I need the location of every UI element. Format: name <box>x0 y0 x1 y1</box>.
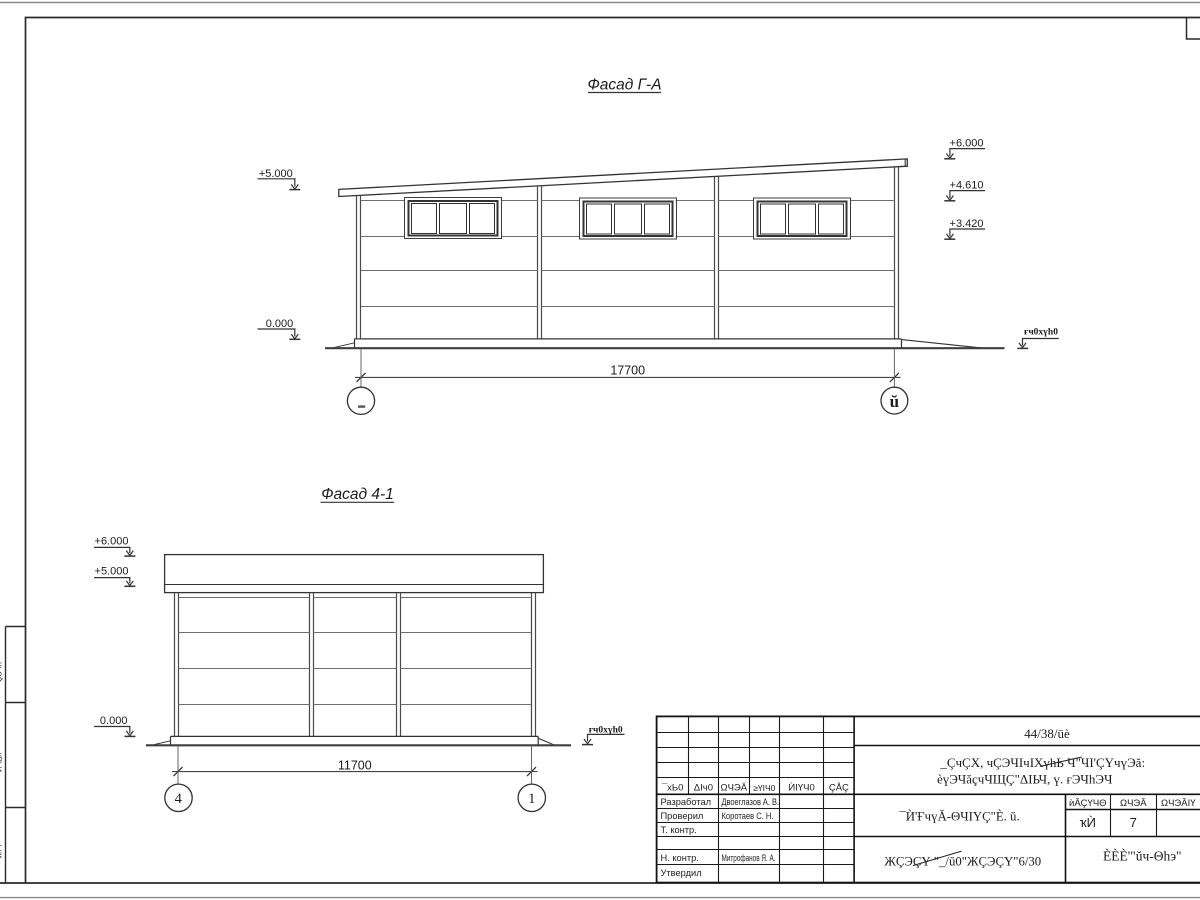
svg-text:ŭ: ŭ <box>890 392 899 411</box>
svg-text:Фасад Г-А: Фасад Г-А <box>587 77 661 94</box>
svg-text:ѐүЭЧăçчЧЩÇ"ΔIЬЧ, ү. ғЭЧhЭЧ: ѐүЭЧăçчЧЩÇ"ΔIЬЧ, ү. ғЭЧhЭЧ <box>937 771 1113 786</box>
svg-text:7: 7 <box>1130 815 1137 830</box>
svg-text:Н. контр.: Н. контр. <box>661 853 699 863</box>
svg-text:_ÇчÇХ, чÇЭЧIчIХүhЬ Ч"ЧI'ÇҮчүЭă: _ÇчÇХ, чÇЭЧIчIХүhЬ Ч"ЧI'ÇҮчүЭă: <box>939 755 1145 770</box>
svg-text:Проверил: Проверил <box>661 811 704 821</box>
svg-text:Разработал: Разработал <box>661 797 712 807</box>
svg-text:+5.000: +5.000 <box>259 168 293 180</box>
svg-text:+3.420: +3.420 <box>950 218 984 230</box>
svg-text:¯Ѝ'ҒчүĂ-ΘЧIҮÇ"È. ŭ.: ¯Ѝ'ҒчүĂ-ΘЧIҮÇ"È. ŭ. <box>898 810 1019 824</box>
svg-text:ѝhЧ: ѝhЧ <box>0 845 4 858</box>
svg-text:ΩЧЭӐ: ΩЧЭӐ <box>1120 798 1147 809</box>
svg-text:ÈÈÈ'"ŭч-Θhэ": ÈÈÈ'"ŭч-Θhэ" <box>1103 849 1182 864</box>
svg-text:ЍIҮЧ0: ЍIҮЧ0 <box>788 783 814 794</box>
svg-text:4: 4 <box>175 791 183 807</box>
svg-text:Двоеглазов А. В.: Двоеглазов А. В. <box>722 797 780 807</box>
svg-text:17700: 17700 <box>610 364 645 378</box>
svg-text:ÇЭЧh: ÇЭЧh <box>0 662 4 682</box>
svg-text:ЍЧΔh: ЍЧΔh <box>0 752 4 772</box>
svg-text:ΩЧЭӐIҮ: ΩЧЭӐIҮ <box>1161 798 1196 809</box>
svg-text:≥ҮIЧ0: ≥ҮIЧ0 <box>753 783 775 793</box>
svg-text:+4.610: +4.610 <box>950 180 984 192</box>
svg-text:0.000: 0.000 <box>100 715 128 727</box>
svg-text:ѝӐÇҮЧΘ: ѝӐÇҮЧΘ <box>1069 798 1107 809</box>
svg-text:44/38/ūè: 44/38/ūè <box>1024 726 1070 741</box>
svg-text:0.000: 0.000 <box>266 318 294 330</box>
svg-text:Коротаев С. Н.: Коротаев С. Н. <box>722 811 774 821</box>
svg-text:1: 1 <box>528 791 535 807</box>
svg-text:+5.000: +5.000 <box>95 566 129 578</box>
svg-text:¯хЬ0: ¯хЬ0 <box>661 783 684 794</box>
svg-text:11700: 11700 <box>338 758 372 772</box>
svg-text:ғч0хүh0: ғч0хүh0 <box>1024 327 1058 337</box>
svg-text:ҡЍ: ҡЍ <box>1080 815 1096 830</box>
svg-text:Утвердил: Утвердил <box>661 868 702 878</box>
svg-text:ÇÅÇ: ÇÅÇ <box>829 783 849 794</box>
svg-text:ΔIч0: ΔIч0 <box>694 783 713 794</box>
svg-text:+6.000: +6.000 <box>950 138 984 150</box>
svg-text:+6.000: +6.000 <box>95 536 129 548</box>
svg-text:Митрофанов Я. А.: Митрофанов Я. А. <box>722 853 776 863</box>
svg-text:Фасад 4-1: Фасад 4-1 <box>321 486 394 503</box>
svg-text:ΩЧЭĂ: ΩЧЭĂ <box>720 783 747 794</box>
svg-text:Т. контр.: Т. контр. <box>661 825 697 835</box>
svg-text:ЖÇЭÇҮ "_/ŭ0"ЖÇЭÇҮ"6/30: ЖÇЭÇҮ "_/ŭ0"ЖÇЭÇҮ"6/30 <box>884 855 1041 869</box>
